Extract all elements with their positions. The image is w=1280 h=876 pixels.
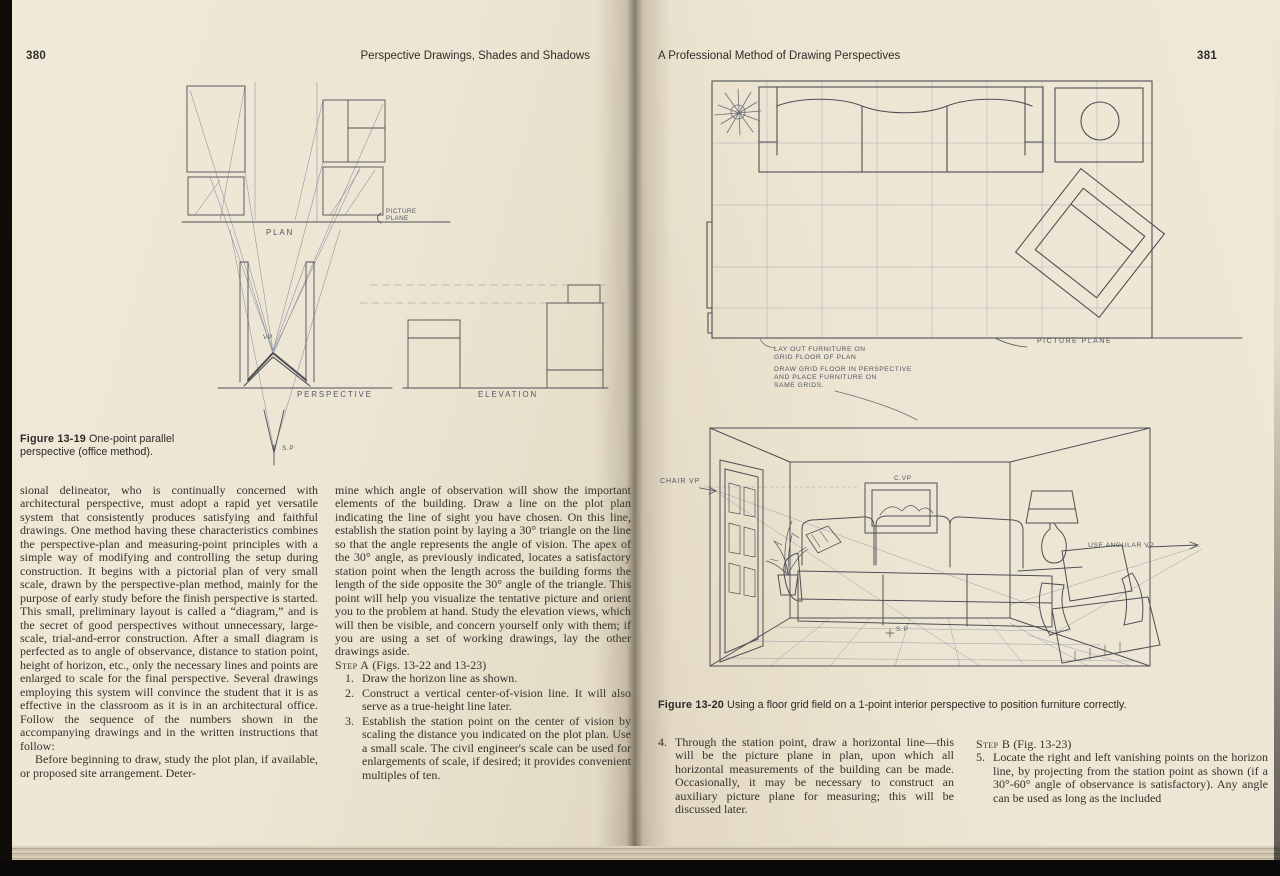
list-item: 1. Draw the horizon line as shown. [345,672,631,685]
fig20-caption-label: Figure 13-20 [658,699,724,711]
right-running-header: A Professional Method of Drawing Perspec… [658,50,900,62]
step-b-heading: Step B (Fig. 13-23) [976,738,1268,751]
fig20-use-angular-vp-label: USE ANGULAR VP [1088,542,1154,550]
paragraph: mine which angle of observation will sho… [335,484,631,659]
step-a-heading: Step A (Figs. 13-22 and 13-23) [335,659,631,672]
paragraph: sional delineator, who is continually co… [20,484,318,753]
left-page-column-2: mine which angle of observation will sho… [335,484,631,783]
right-page-number: 381 [1197,50,1217,62]
figure-13-20-perspective-drawing [680,413,1250,695]
list-item: 2. Construct a vertical center-of-vision… [345,687,631,714]
right-page-column-1: 4. Through the station point, draw a hor… [658,736,954,817]
fig20-picture-plane-label: PICTURE PLANE [1037,338,1112,345]
figure-13-20-plan-drawing [685,75,1245,420]
photo-black-margin [0,860,1280,876]
figure-13-19-drawing [160,70,630,470]
fig19-caption-label: Figure 13-19 [20,433,86,445]
fig19-perspective-label: PERSPECTIVE [297,390,373,399]
fig20-cvp-label: C.VP [894,475,912,482]
list-item: 5. Locate the right and left vanishing p… [976,751,1268,805]
left-page: 380 Perspective Drawings, Shades and Sha… [12,0,632,852]
fig20-caption-text: Using a floor grid field on a 1-point in… [727,699,1126,711]
right-page: A Professional Method of Drawing Perspec… [632,0,1280,852]
fig20-sp-label: S.P [896,626,909,633]
fig19-plan-label: PLAN [266,228,294,237]
left-page-column-1: sional delineator, who is continually co… [20,484,318,780]
fig19-picture-plane-label: PICTURE PLANE [386,208,416,222]
list-item: 3. Establish the station point on the ce… [345,715,631,782]
left-running-header: Perspective Drawings, Shades and Shadows [162,50,590,62]
fig20-note-drawgrid: DRAW GRID FLOOR IN PERSPECTIVE AND PLACE… [774,366,912,391]
fig20-note-layout: LAY OUT FURNITURE ON GRID FLOOR OF PLAN [774,346,866,362]
fig19-caption: Figure 13-19 One-point parallel perspect… [20,433,198,459]
fig19-sp-label: S.P [282,445,294,452]
right-page-column-2: Step B (Fig. 13-23) 5. Locate the right … [976,738,1268,805]
left-page-number: 380 [26,50,46,62]
fig20-caption: Figure 13-20 Using a floor grid field on… [658,699,1233,712]
step-a-list: 1. Draw the horizon line as shown. 2. Co… [335,672,631,782]
list-item: 4. Through the station point, draw a hor… [658,736,954,817]
book-spread-photo: 380 Perspective Drawings, Shades and Sha… [0,0,1280,876]
paragraph: Before beginning to draw, study the plot… [20,753,318,780]
fig19-vp-label: VP [263,334,273,341]
fig19-elevation-label: ELEVATION [478,390,538,399]
fig20-chair-vp-label: CHAIR VP [660,478,700,485]
